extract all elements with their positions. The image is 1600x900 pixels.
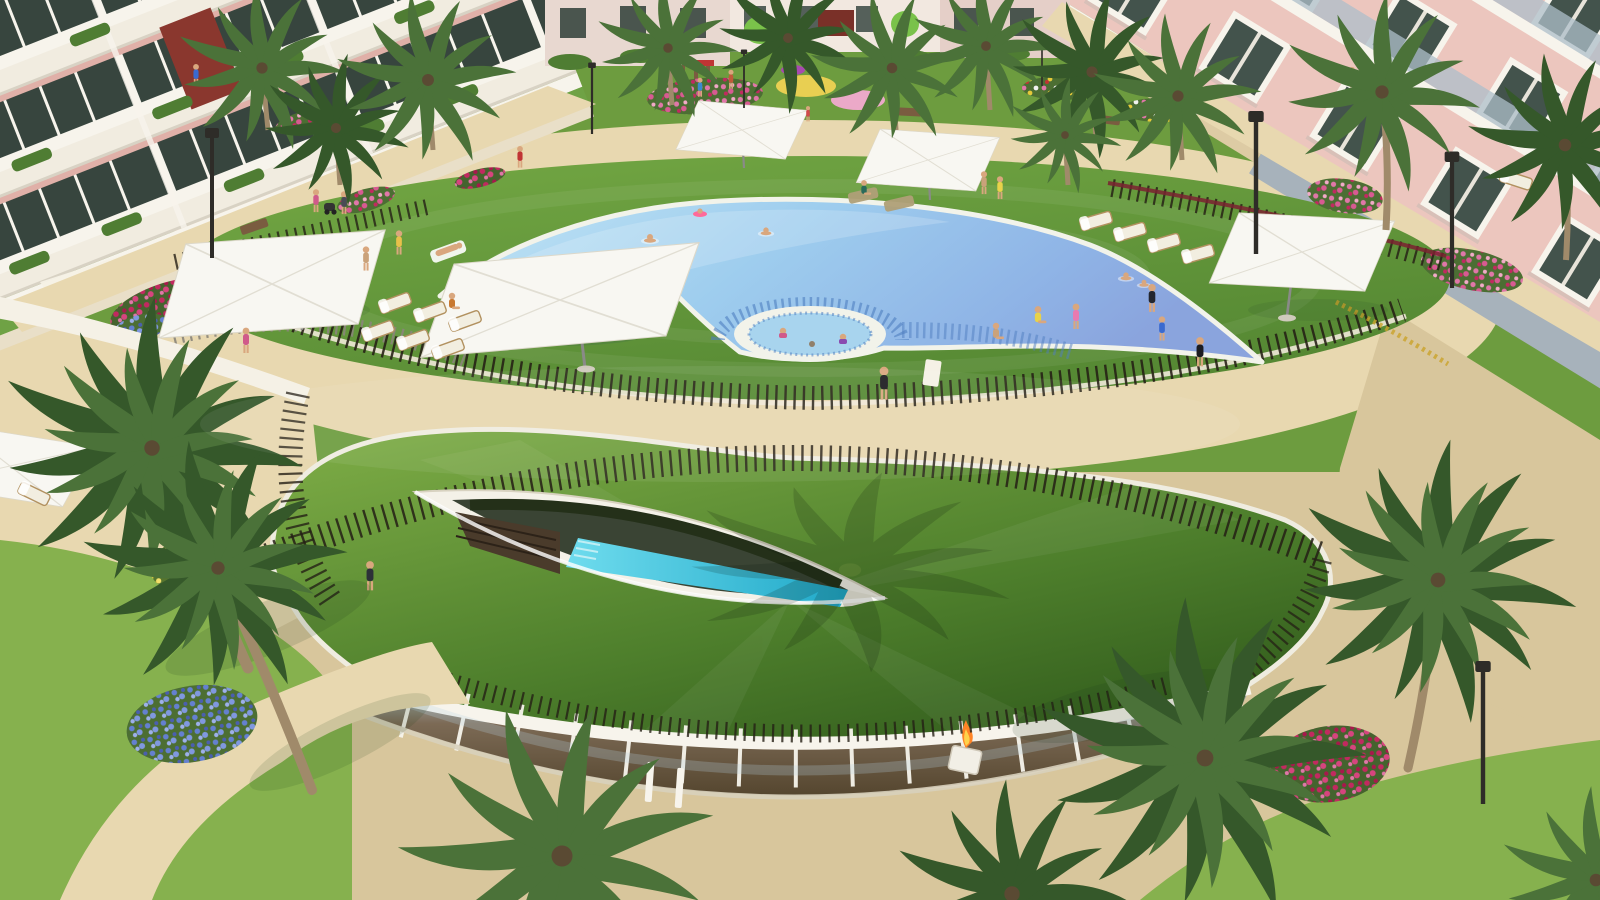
render-canvas bbox=[0, 0, 1600, 900]
resort-aerial-render bbox=[0, 0, 1600, 900]
circular-spa bbox=[734, 306, 886, 362]
path-highlight bbox=[200, 366, 1240, 482]
